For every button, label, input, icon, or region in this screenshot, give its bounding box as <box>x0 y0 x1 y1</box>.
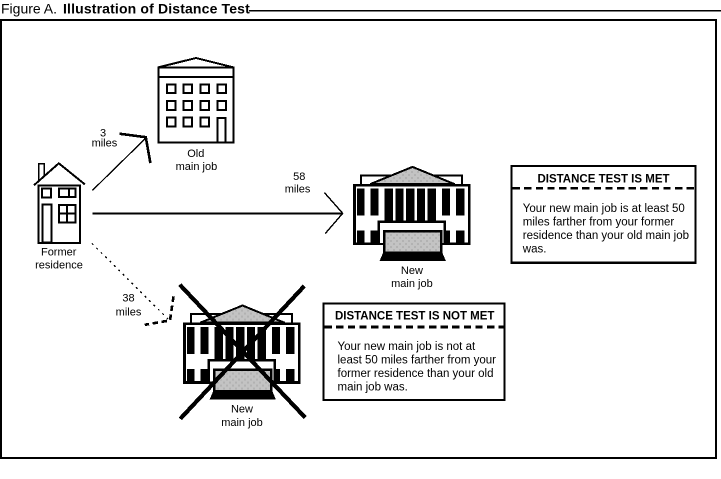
svg-text:residence: residence <box>35 260 83 272</box>
svg-text:38: 38 <box>122 293 134 305</box>
svg-text:Figure A.: Figure A. <box>1 1 57 17</box>
svg-text:main job was.: main job was. <box>338 381 408 393</box>
svg-text:residence than your old main j: residence than your old main job <box>523 230 689 242</box>
svg-text:New: New <box>401 265 423 277</box>
svg-text:main job: main job <box>221 417 263 429</box>
svg-text:miles: miles <box>285 184 311 196</box>
svg-text:main job: main job <box>391 278 433 290</box>
svg-text:DISTANCE TEST IS NOT MET: DISTANCE TEST IS NOT MET <box>335 311 495 323</box>
svg-text:former residence than your old: former residence than your old <box>338 368 494 380</box>
svg-text:DISTANCE TEST IS MET: DISTANCE TEST IS MET <box>537 174 669 186</box>
svg-text:Old: Old <box>187 148 204 160</box>
svg-text:New: New <box>231 404 253 416</box>
svg-text:Former: Former <box>41 247 77 259</box>
svg-text:miles: miles <box>92 138 118 150</box>
svg-text:was.: was. <box>522 243 547 255</box>
svg-text:Your new main job is not at: Your new main job is not at <box>338 341 476 353</box>
svg-text:least 50 miles farther from yo: least 50 miles farther from your <box>338 354 497 366</box>
svg-text:Illustration of Distance Test: Illustration of Distance Test <box>63 1 250 17</box>
svg-text:58: 58 <box>293 171 305 183</box>
svg-text:Your new main job is at least: Your new main job is at least 50 <box>523 203 685 215</box>
svg-text:miles: miles <box>116 307 142 319</box>
svg-text:miles farther from your former: miles farther from your former <box>523 216 675 228</box>
svg-text:main job: main job <box>176 161 218 173</box>
